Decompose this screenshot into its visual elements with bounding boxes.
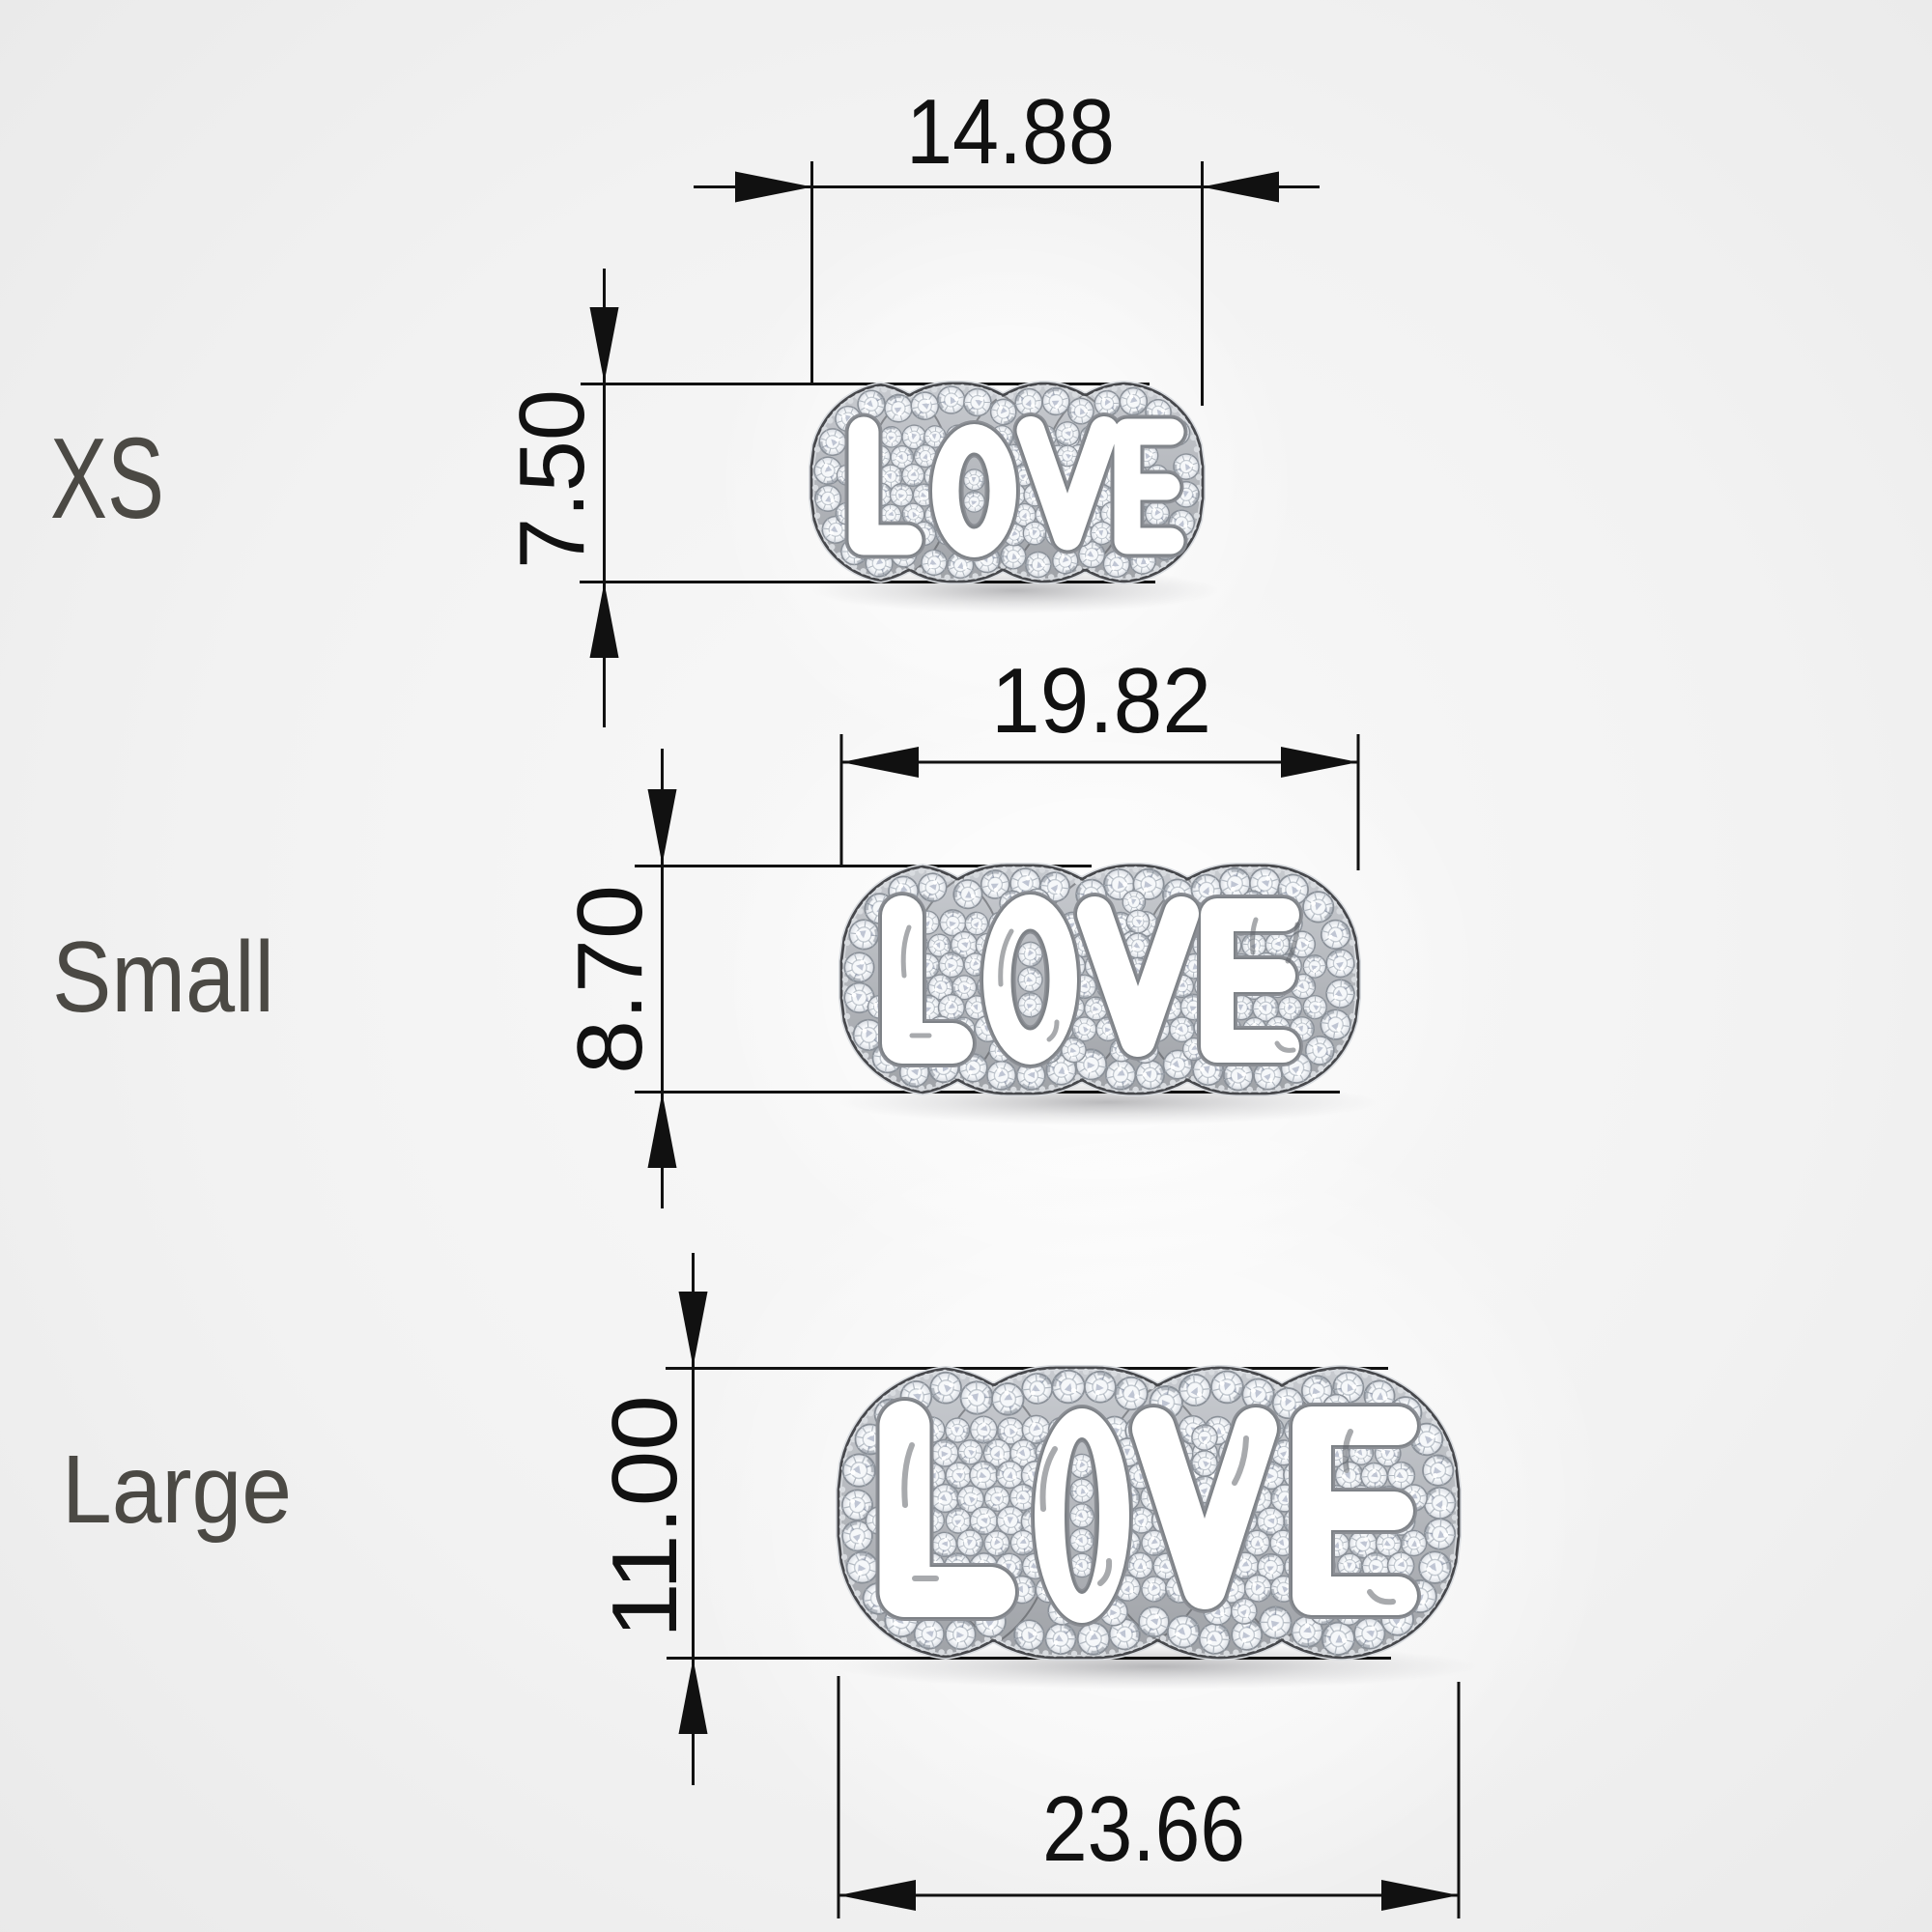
svg-text:XS: XS — [50, 414, 164, 543]
svg-text:8.70: 8.70 — [558, 885, 662, 1074]
svg-text:7.50: 7.50 — [500, 389, 604, 569]
svg-text:23.66: 23.66 — [1042, 1777, 1245, 1881]
svg-text:Small: Small — [52, 922, 274, 1034]
svg-text:19.82: 19.82 — [991, 649, 1211, 753]
svg-text:Large: Large — [62, 1435, 292, 1544]
svg-text:14.88: 14.88 — [906, 80, 1115, 184]
svg-text:11.00: 11.00 — [593, 1395, 696, 1638]
